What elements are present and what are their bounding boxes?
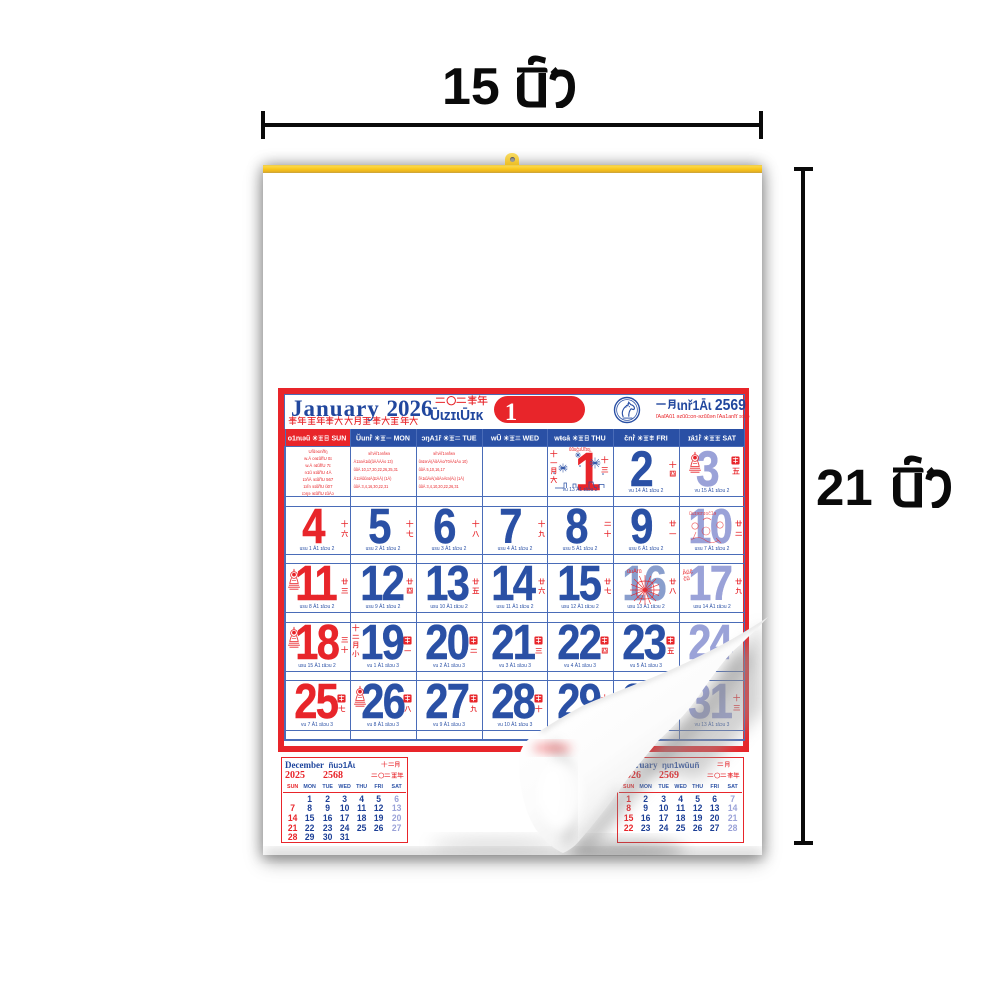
svg-text:ũuɪəɪnɪɢč1ə: ũuɪəɪnɪɢč1ə xyxy=(689,511,717,517)
